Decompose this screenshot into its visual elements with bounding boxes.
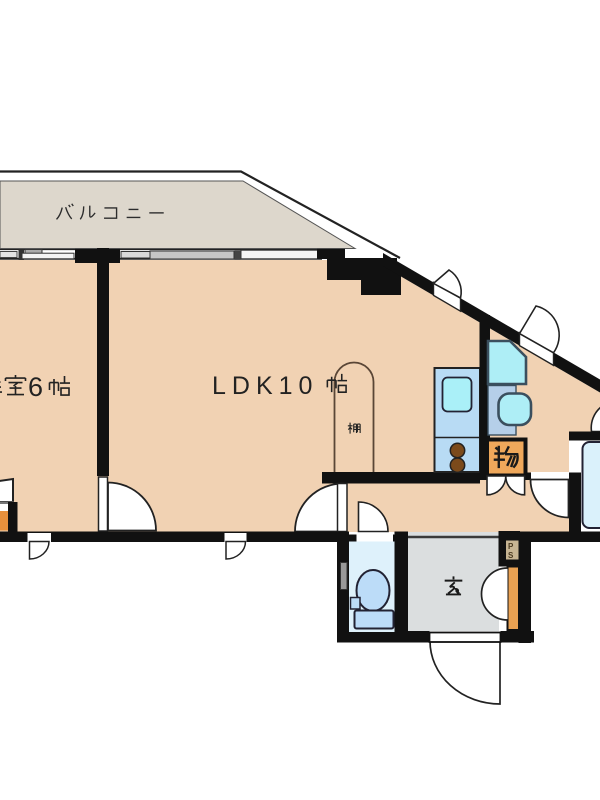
svg-text:S: S: [508, 551, 514, 560]
svg-text:P: P: [508, 542, 514, 551]
svg-text:LDK10: LDK10: [212, 372, 318, 400]
svg-text:6: 6: [28, 372, 43, 402]
